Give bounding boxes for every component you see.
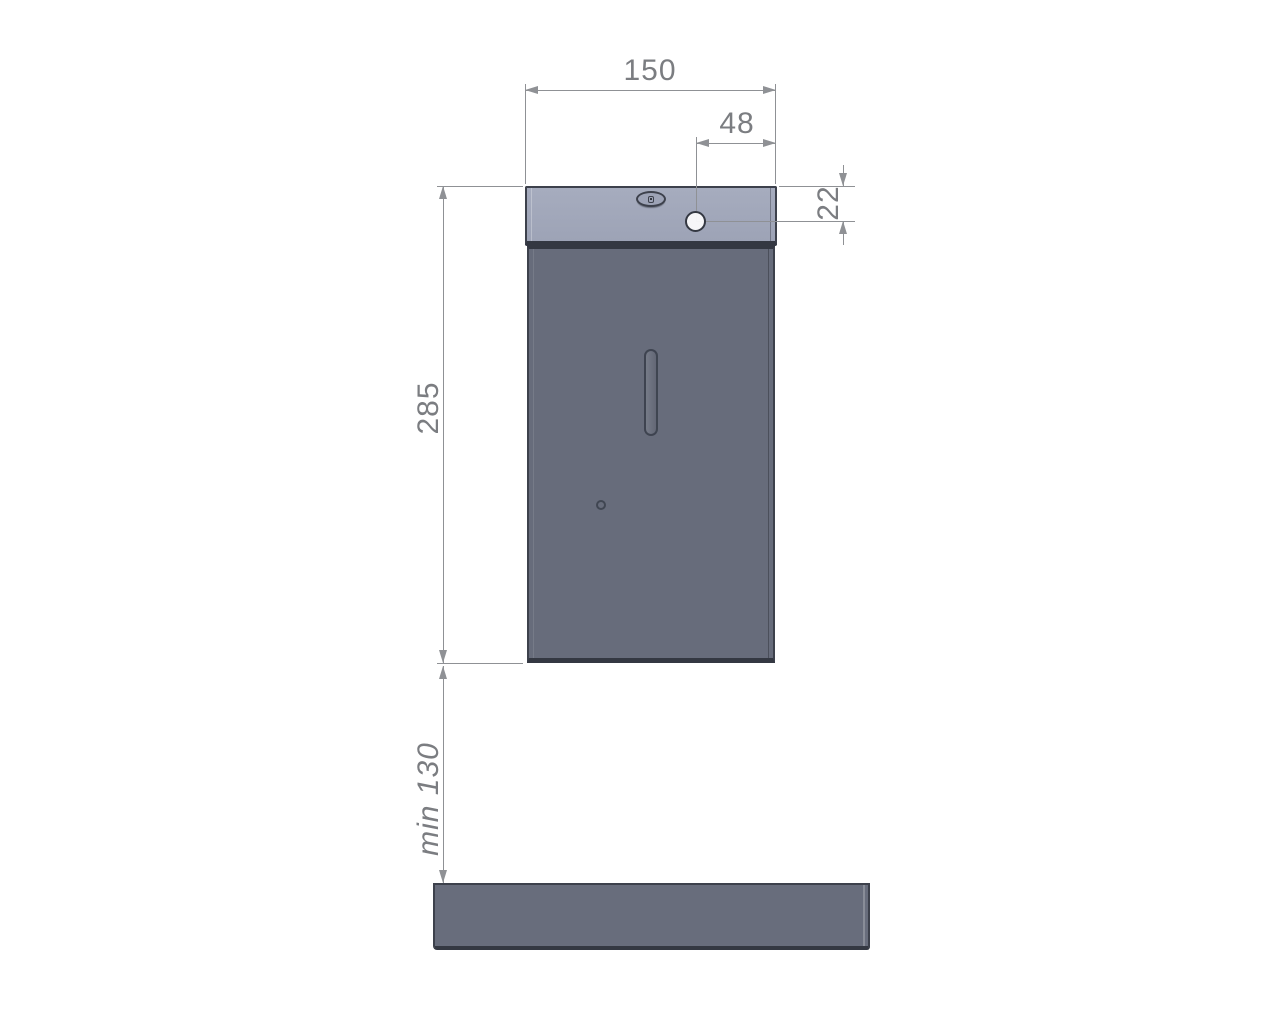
ext-line-hole-vertical [696, 137, 697, 221]
ext-line-height-bottom [437, 663, 523, 664]
arrowhead-icon [525, 86, 538, 94]
dim-hole-offset-label: 48 [700, 111, 774, 137]
arrowhead-icon [439, 186, 447, 199]
ext-line-width-right [775, 84, 776, 184]
technical-drawing-canvas: 150 48 22 285 min 130 [0, 0, 1280, 1024]
arrowhead-icon [763, 86, 776, 94]
dim-clearance-label: min 130 [416, 719, 442, 879]
arrowhead-icon [439, 650, 447, 663]
dim-width-label: 150 [600, 58, 700, 84]
arrowhead-icon [439, 666, 447, 679]
ext-line-height-top [437, 186, 523, 187]
dim-line-width [525, 90, 776, 91]
dim-height-label: 285 [416, 348, 442, 468]
arrowhead-icon [763, 139, 776, 147]
ext-line-width-left [525, 84, 526, 184]
mounting-hole [685, 211, 706, 232]
dim-hole-vertical-label: 22 [816, 173, 842, 233]
dimension-layer: 150 48 22 285 min 130 [0, 0, 1280, 1024]
arrowhead-icon [696, 139, 709, 147]
